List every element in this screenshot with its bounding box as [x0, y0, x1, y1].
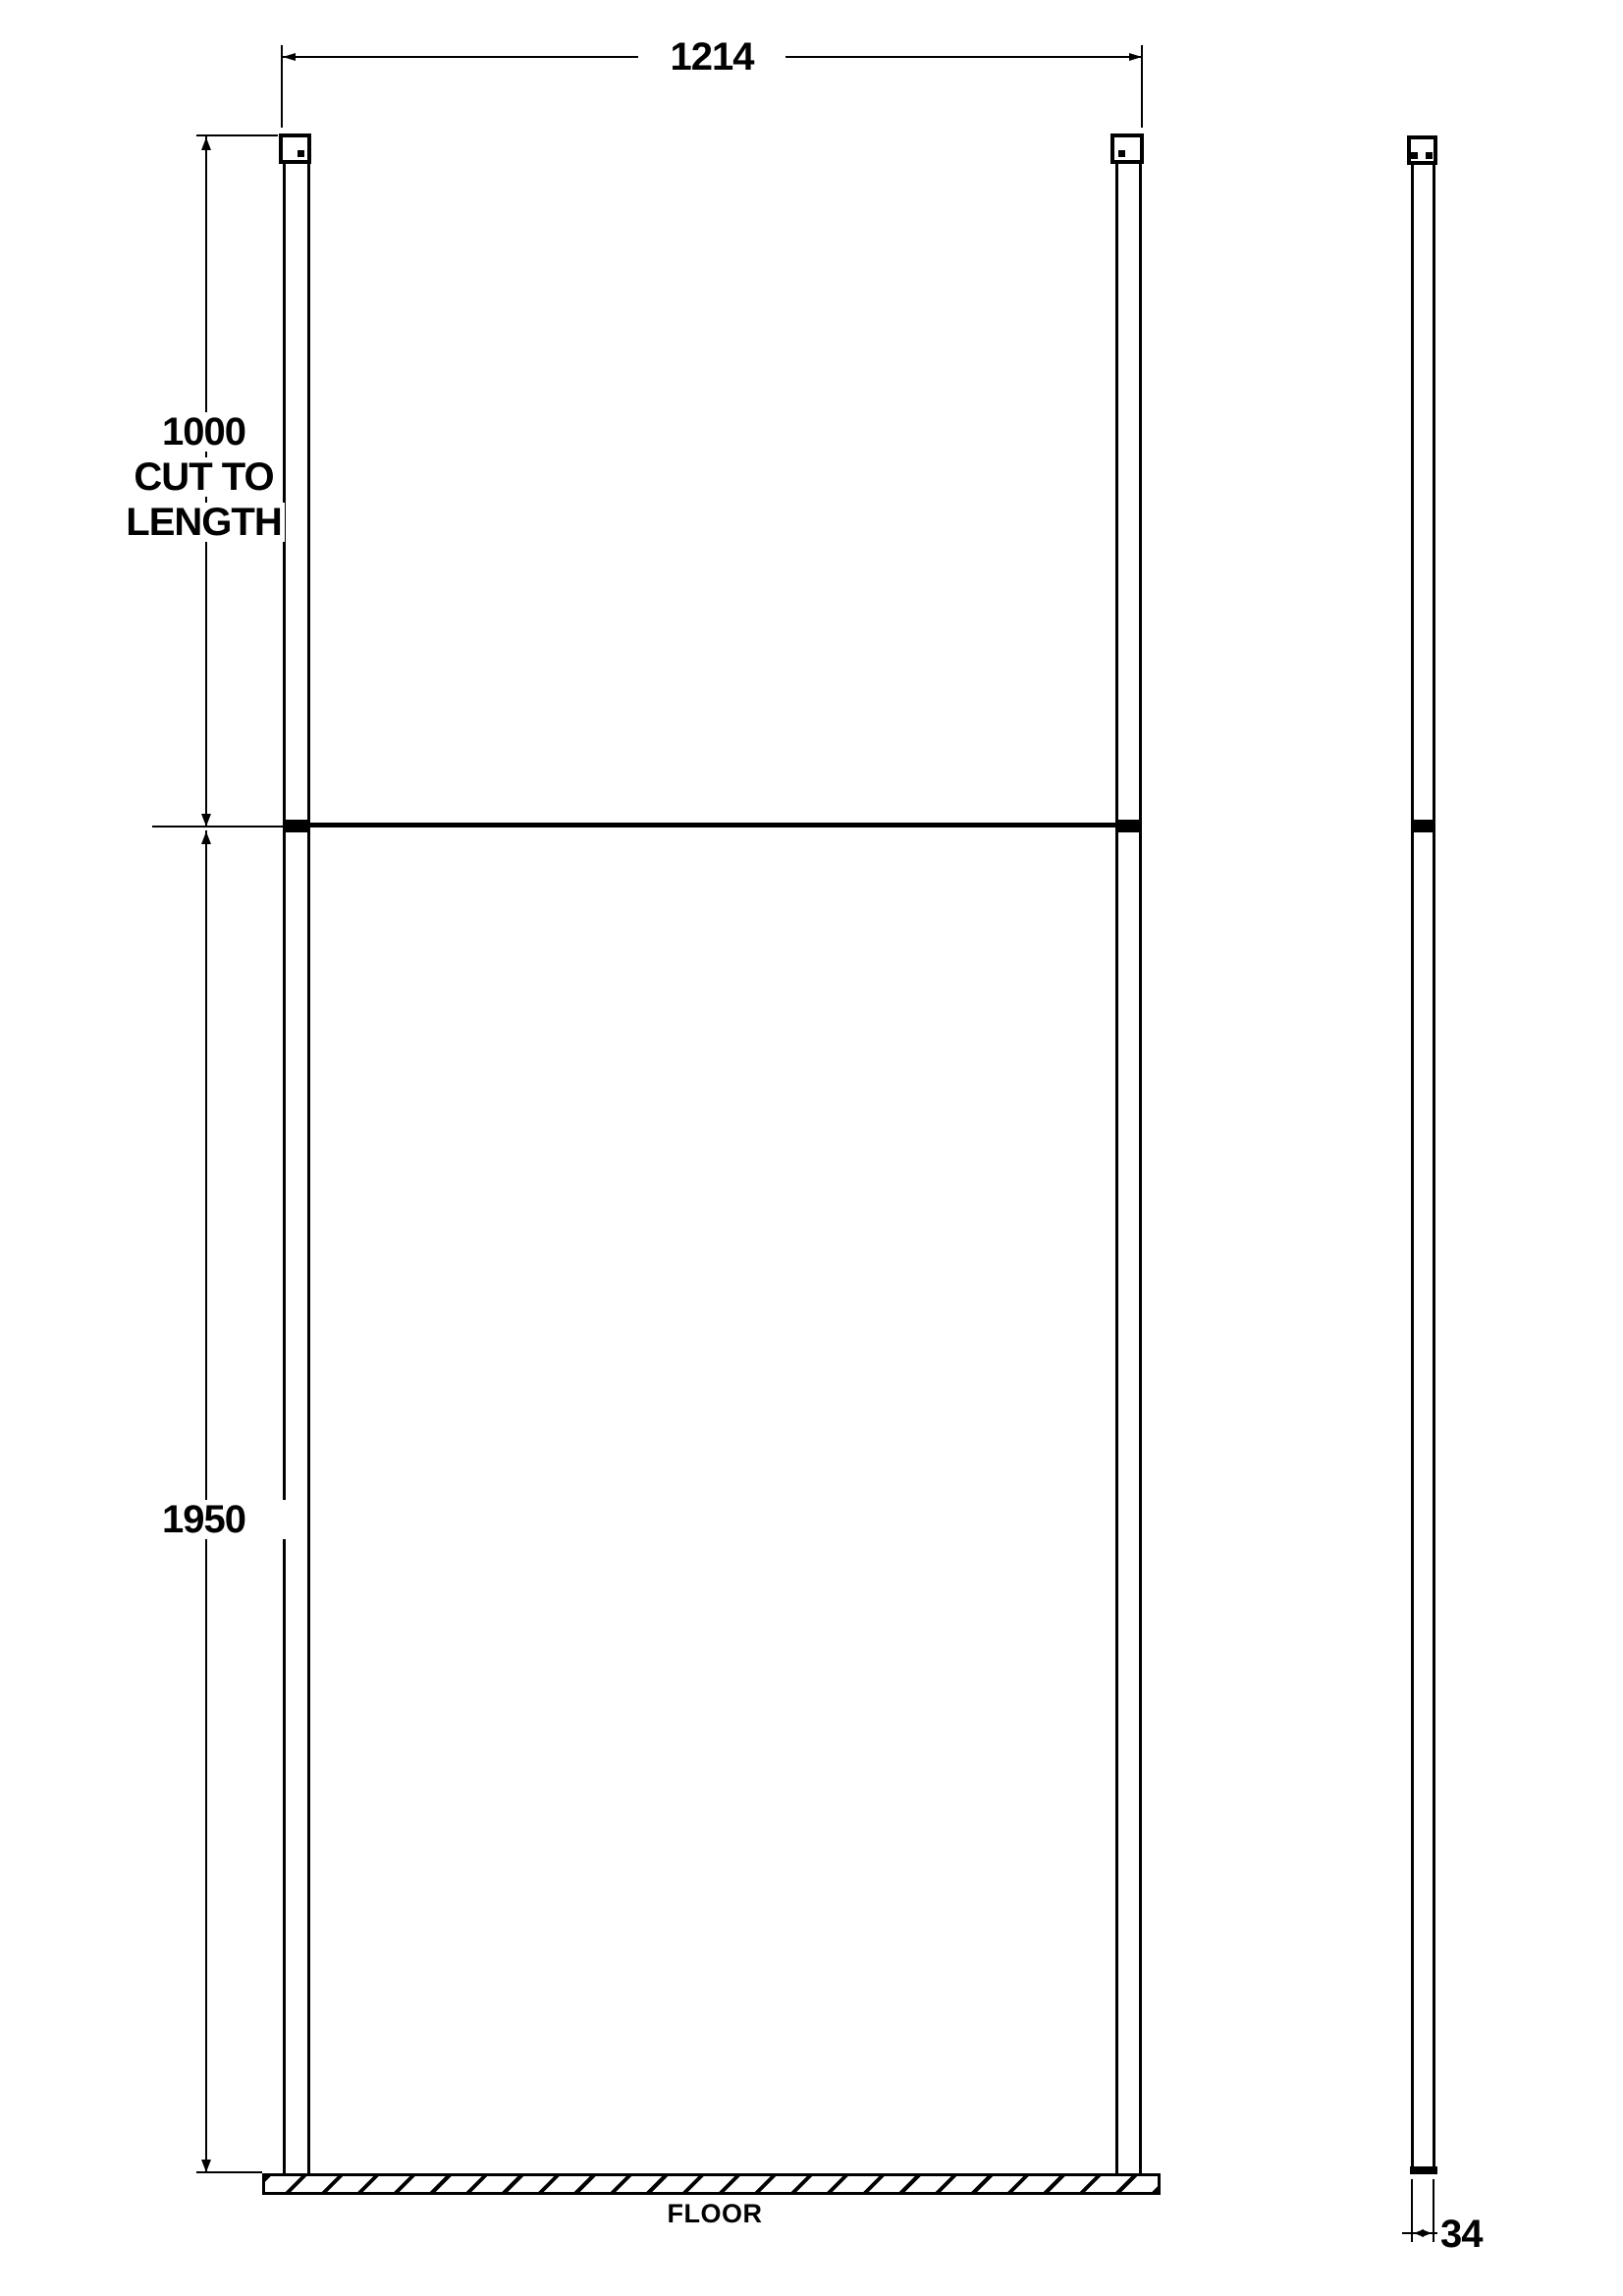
dim-width-line-left [283, 56, 668, 58]
dim-height-ext-bottom [196, 2171, 262, 2173]
dim-cut-arrow-bottom [201, 814, 211, 827]
dim-height-label: 1950 [118, 1500, 290, 1539]
right-post-outer-line [1139, 164, 1142, 2173]
side-glass-clamp [1411, 820, 1435, 832]
glass-panel-top-edge [283, 823, 1142, 828]
glass-top-extension-line [152, 826, 283, 828]
right-post-ceiling-cap [1110, 133, 1144, 164]
side-post-ceiling-cap [1407, 135, 1437, 165]
dim-width-arrow-right [1129, 53, 1142, 61]
left-post-ceiling-cap [279, 133, 311, 164]
floor-label: FLOOR [568, 2199, 862, 2229]
side-post-left-line [1411, 164, 1414, 2166]
dim-cut-label: 1000 CUT TO LENGTH [93, 412, 314, 542]
dim-width-label: 1214 [638, 37, 785, 77]
dim-cut-ext-top [196, 134, 278, 136]
side-post-right-line [1433, 164, 1435, 2166]
shower-screen-technical-drawing: FLOOR 1214 1000 CUT TO LENGTH [0, 0, 1623, 2296]
floor-hatch [262, 2173, 1161, 2195]
side-bottom-cap [1410, 2166, 1437, 2174]
dim-cut-arrow-top [201, 137, 211, 150]
dim-height-arrow-top [201, 831, 211, 844]
dim-cut-label-line1: 1000 [159, 412, 248, 452]
dim-thickness-arrow-right [1422, 2229, 1432, 2237]
right-cap-screw-dot [1118, 150, 1125, 157]
dim-width-line-right [756, 56, 1142, 58]
side-cap-screw-dot-right [1426, 152, 1433, 159]
dim-cut-label-line3: LENGTH [123, 503, 284, 542]
dim-width-arrow-left [283, 53, 296, 61]
right-post-inner-line [1115, 164, 1118, 2173]
dim-cut-label-line2: CUT TO [131, 457, 276, 497]
side-cap-screw-dot-left [1411, 152, 1418, 159]
left-cap-screw-dot [298, 150, 304, 157]
dim-thickness-label: 34 [1437, 2215, 1499, 2254]
